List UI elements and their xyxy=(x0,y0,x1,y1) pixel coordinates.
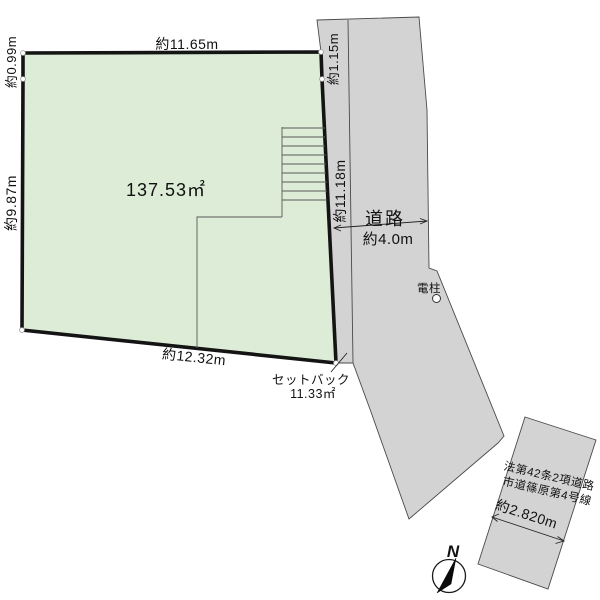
vertex-marker xyxy=(21,51,26,56)
road-width-label: 約4.0m xyxy=(363,231,414,248)
top-dimension-label: 約11.65m xyxy=(155,36,218,52)
left-upper-dimension-label: 約0.99m xyxy=(4,36,19,88)
plot-polygon xyxy=(22,52,336,363)
right-upper-dimension-label: 約1.15m xyxy=(326,33,341,85)
vertex-marker xyxy=(320,77,325,82)
compass: N xyxy=(433,542,466,593)
plot-area-label: 137.53㎡ xyxy=(126,179,206,200)
vertex-marker xyxy=(20,328,25,333)
vertex-marker xyxy=(319,50,324,55)
setback-label: セットバック xyxy=(272,373,350,387)
setback-area-label: 11.33㎡ xyxy=(290,387,336,401)
vertex-marker xyxy=(21,77,26,82)
right-dimension-label: 約11.18m xyxy=(332,159,348,222)
road-label: 道路 xyxy=(365,209,405,229)
utility-pole-label: 電柱 xyxy=(417,281,441,295)
land-plot-diagram: N 137.53㎡ 約11.65m 約0.99m 約9.87m 約1.15m 約… xyxy=(0,0,600,600)
left-dimension-label: 約9.87m xyxy=(3,175,19,231)
road-polygon xyxy=(317,17,504,519)
survey-drawing: N 137.53㎡ 約11.65m 約0.99m 約9.87m 約1.15m 約… xyxy=(0,0,600,600)
utility-pole-circle xyxy=(433,295,441,303)
north-label: N xyxy=(447,542,460,561)
